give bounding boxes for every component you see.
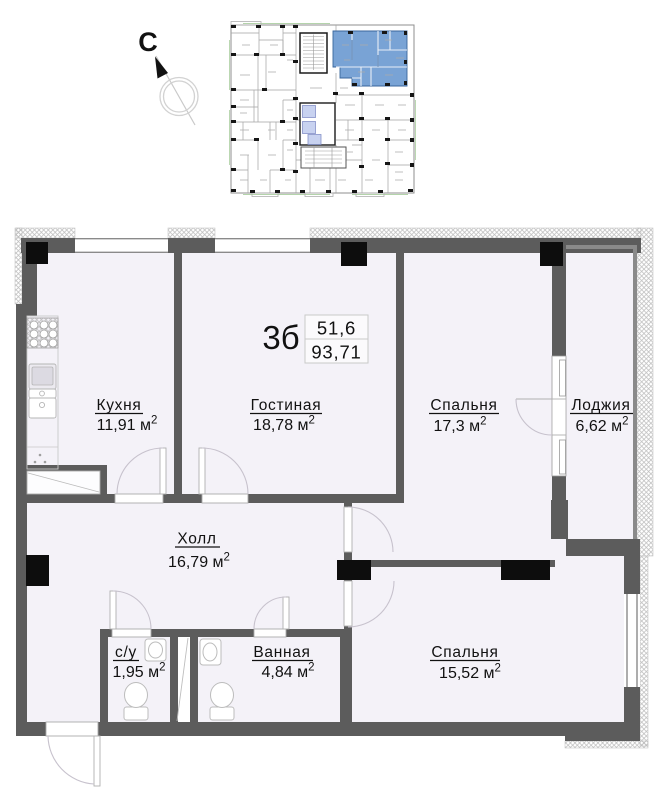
svg-text:16,79 м2: 16,79 м2 xyxy=(168,552,230,572)
svg-text:11,91 м2: 11,91 м2 xyxy=(97,415,158,435)
svg-text:6,62 м2: 6,62 м2 xyxy=(576,416,629,436)
svg-text:51,6: 51,6 xyxy=(317,318,356,339)
svg-text:Кухня: Кухня xyxy=(97,397,142,414)
svg-text:Спальня: Спальня xyxy=(431,644,498,661)
svg-text:1,95 м2: 1,95 м2 xyxy=(113,662,166,682)
svg-text:С: С xyxy=(138,27,158,57)
svg-text:4,84 м2: 4,84 м2 xyxy=(262,662,315,682)
svg-text:93,71: 93,71 xyxy=(311,342,361,363)
svg-text:с/у: с/у xyxy=(115,644,137,661)
svg-text:15,52 м2: 15,52 м2 xyxy=(439,663,501,683)
svg-text:Холл: Холл xyxy=(177,531,216,548)
svg-text:Гостиная: Гостиная xyxy=(251,397,322,414)
svg-text:18,78 м2: 18,78 м2 xyxy=(253,415,315,435)
svg-text:17,3 м2: 17,3 м2 xyxy=(434,416,487,436)
svg-text:Спальня: Спальня xyxy=(430,397,497,414)
svg-text:3б: 3б xyxy=(262,319,299,356)
svg-text:Лоджия: Лоджия xyxy=(571,397,630,414)
svg-text:Ванная: Ванная xyxy=(253,644,310,661)
